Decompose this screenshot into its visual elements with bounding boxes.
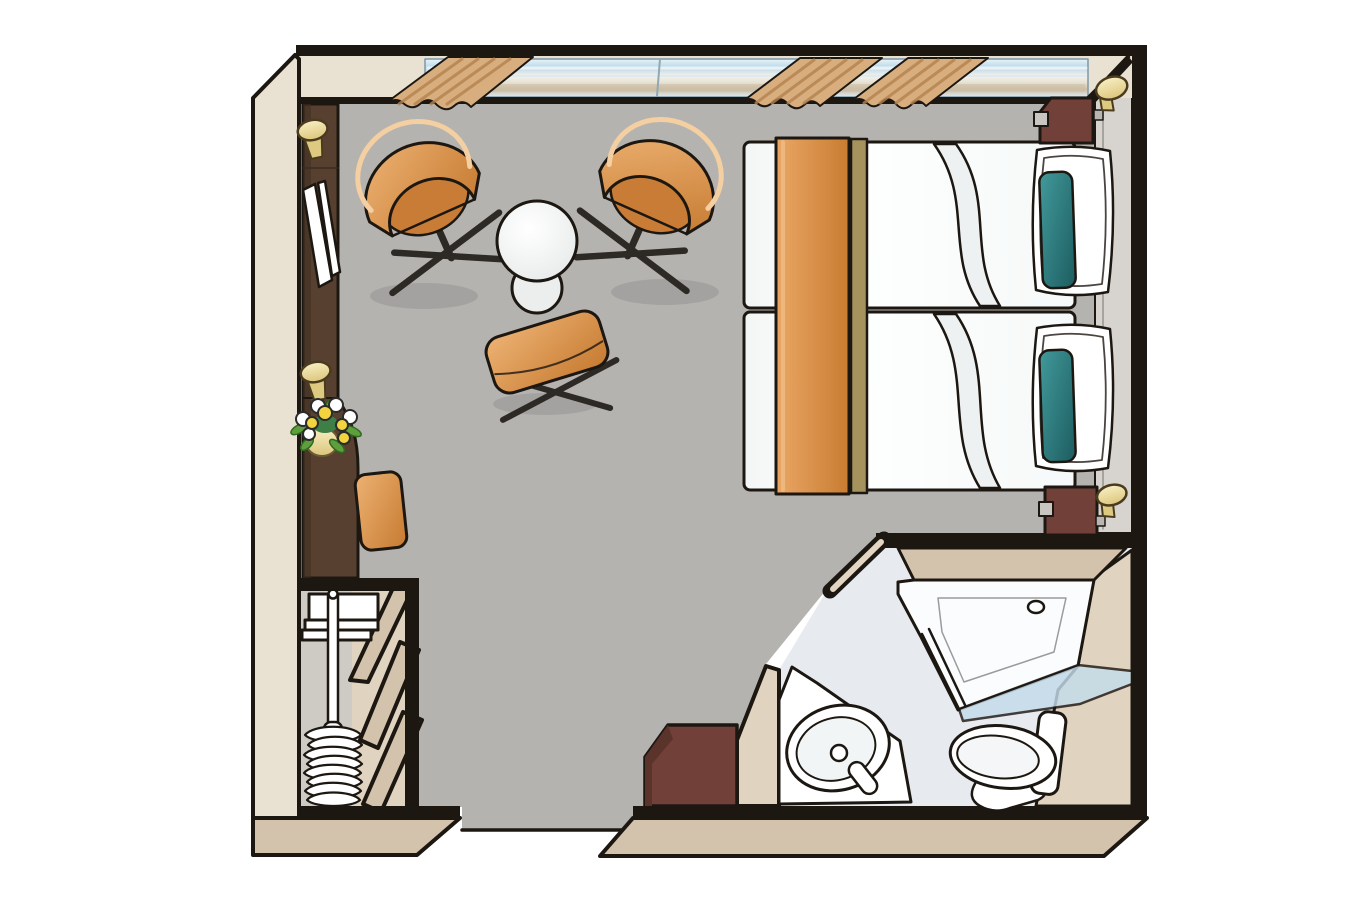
shower-drain <box>1028 601 1044 613</box>
vanity-desk-edge-shade <box>303 104 311 578</box>
wardrobe-closet <box>300 588 422 812</box>
nightstand-step <box>1034 112 1048 126</box>
floor-plan-page <box>0 0 1367 911</box>
nightstand-step <box>1039 502 1053 516</box>
basin-drain <box>831 745 847 761</box>
wall-bracket <box>1094 110 1103 120</box>
clothes-hangers <box>304 727 362 806</box>
bottom-right-wall-bevel <box>600 818 1147 856</box>
right-wall <box>1132 45 1147 818</box>
bed-runner <box>776 138 867 494</box>
runner-stripe <box>851 139 867 493</box>
pillow-upper <box>1033 147 1113 295</box>
wardrobe-top-wall <box>298 578 419 591</box>
beds <box>744 138 1113 494</box>
entrance <box>645 725 737 806</box>
wardrobe-shelf-stack <box>302 594 378 640</box>
pillow-lower <box>1033 325 1113 471</box>
top-wall <box>296 45 1147 57</box>
left-wall <box>253 55 299 818</box>
cabin-floor-plan <box>0 0 1367 911</box>
chair-shadow <box>370 283 478 309</box>
pillow-insert-teal <box>1039 349 1076 462</box>
wardrobe-right-wall <box>405 578 419 810</box>
vanity-stool <box>354 471 408 551</box>
wall-bracket <box>1096 516 1105 526</box>
bottom-left-wall-bevel <box>253 818 460 855</box>
pillow-insert-teal <box>1039 171 1076 288</box>
table-top <box>497 201 577 281</box>
shower-back-wall <box>898 548 1126 580</box>
bathroom-top-wall <box>876 533 1147 548</box>
entry-cabinet <box>645 725 737 806</box>
chair-shadow <box>611 279 719 305</box>
